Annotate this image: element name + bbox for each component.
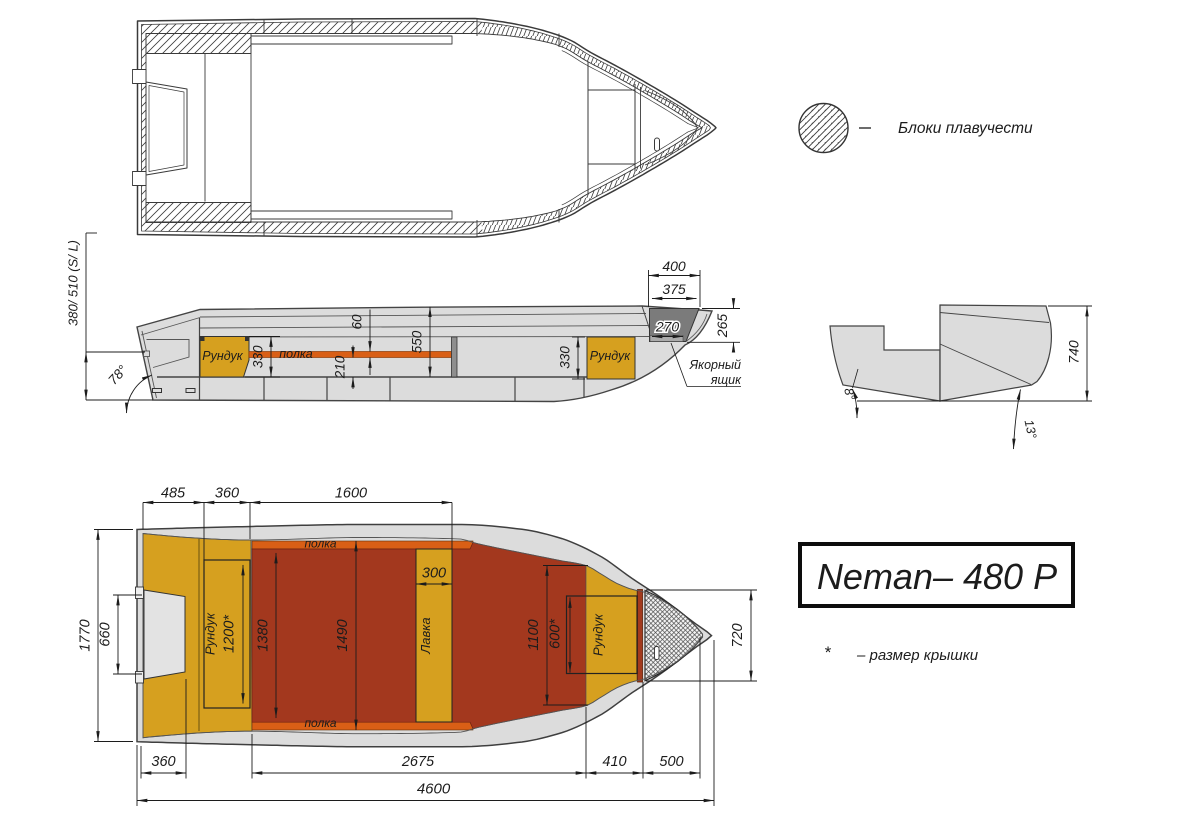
svg-text:210: 210 [333,355,348,379]
svg-text:330: 330 [251,345,266,368]
svg-text:Рундук: Рундук [202,349,243,363]
svg-text:2675: 2675 [401,754,435,770]
svg-text:полка: полка [279,347,313,361]
svg-text:1100: 1100 [526,619,542,650]
svg-text:полка: полка [304,716,336,730]
svg-text:500: 500 [659,754,683,770]
svg-text:400: 400 [662,258,686,274]
svg-text:375: 375 [662,281,686,297]
svg-text:1490: 1490 [335,619,351,651]
svg-text:1200*: 1200* [222,614,238,653]
svg-text:60: 60 [350,314,365,330]
svg-text:485: 485 [161,486,186,502]
svg-text:1600: 1600 [335,486,367,502]
svg-text:ящик: ящик [710,373,742,387]
svg-text:Якорный: Якорный [689,358,741,372]
svg-text:300: 300 [422,566,446,582]
svg-text:360: 360 [151,754,175,770]
svg-text:Лавка: Лавка [418,617,433,654]
svg-text:380/ 510 (S/ L): 380/ 510 (S/ L) [66,240,81,326]
svg-text:410: 410 [602,754,626,770]
svg-text:4600: 4600 [417,781,451,798]
svg-text:Рундук: Рундук [590,349,631,363]
svg-text:550: 550 [410,330,425,353]
svg-text:270: 270 [655,319,680,335]
svg-text:265: 265 [714,314,730,339]
svg-text:740: 740 [1066,340,1082,364]
svg-text:Рундук: Рундук [591,613,606,656]
svg-text:330: 330 [558,346,573,369]
svg-text:полка: полка [304,537,336,551]
svg-text:Neman– 480 P: Neman– 480 P [817,556,1057,597]
svg-text:Блоки плавучести: Блоки плавучести [898,120,1033,137]
svg-text:660: 660 [98,622,114,646]
svg-text:– размер крышки: – размер крышки [856,647,979,664]
svg-text:1770: 1770 [78,619,94,651]
svg-text:1380: 1380 [256,619,272,651]
svg-text:600*: 600* [548,618,564,649]
svg-text:720: 720 [730,623,746,647]
svg-text:Рундук: Рундук [203,612,218,655]
svg-text:360: 360 [215,486,239,502]
